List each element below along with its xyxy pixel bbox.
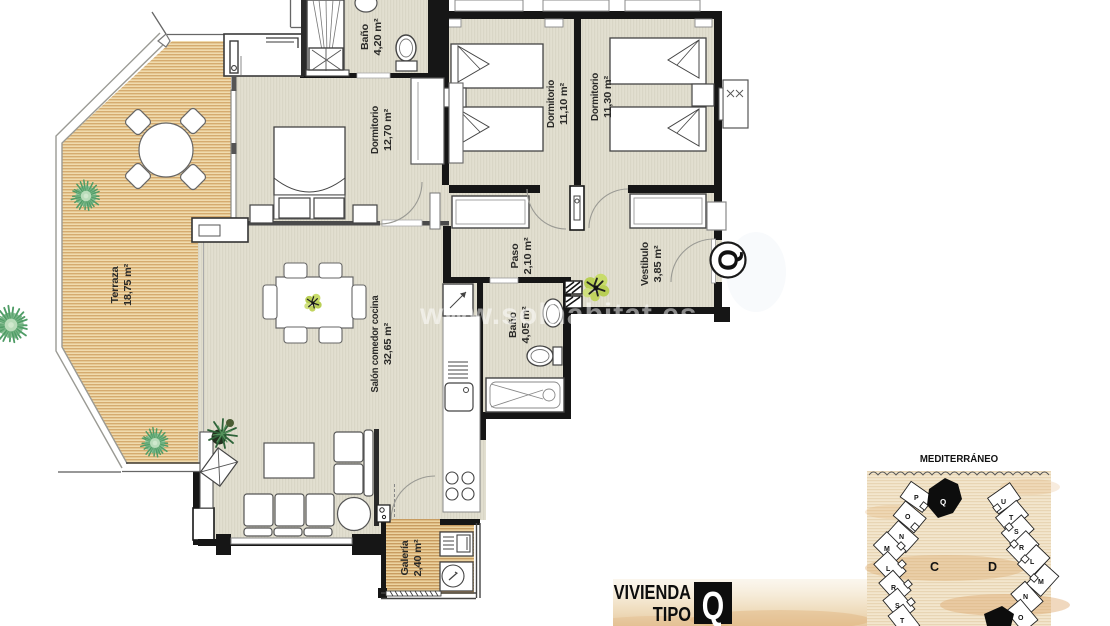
- svg-text:TIPO: TIPO: [653, 602, 691, 625]
- svg-text:N: N: [899, 534, 904, 541]
- svg-text:D: D: [988, 560, 997, 574]
- svg-text:Dormitorio12,70 m²: Dormitorio12,70 m²: [369, 106, 394, 154]
- svg-text:Q: Q: [940, 498, 946, 507]
- svg-text:Dormitorio11,30 m²: Dormitorio11,30 m²: [589, 73, 614, 121]
- svg-text:S: S: [1014, 529, 1019, 536]
- svg-text:R: R: [891, 585, 896, 592]
- svg-text:O: O: [1018, 615, 1024, 622]
- svg-text:C: C: [930, 560, 939, 574]
- svg-text:N: N: [1023, 594, 1028, 601]
- svg-text:U: U: [1001, 499, 1006, 506]
- svg-text:Galería2,40 m²: Galería2,40 m²: [399, 539, 424, 577]
- svg-text:VIVIENDA: VIVIENDA: [614, 580, 691, 603]
- svg-text:MEDITERRÁNEO: MEDITERRÁNEO: [920, 452, 998, 466]
- svg-text:Terraza18,75 m²: Terraza18,75 m²: [109, 263, 134, 306]
- svg-text:L: L: [1030, 559, 1035, 566]
- svg-text:Q: Q: [713, 249, 744, 271]
- svg-text:Vestibulo3,85 m²: Vestibulo3,85 m²: [639, 242, 664, 286]
- svg-text:L: L: [886, 566, 891, 573]
- svg-text:R: R: [1019, 545, 1024, 552]
- svg-text:M: M: [1038, 579, 1044, 586]
- svg-text:Dormitorio11,10 m²: Dormitorio11,10 m²: [545, 80, 570, 128]
- svg-text:www.solhabitat.es: www.solhabitat.es: [419, 298, 698, 331]
- svg-text:P: P: [914, 495, 919, 502]
- svg-text:T: T: [1009, 515, 1014, 522]
- svg-text:T: T: [900, 618, 905, 625]
- svg-text:M: M: [884, 546, 890, 553]
- svg-text:O: O: [905, 514, 911, 521]
- svg-text:Q: Q: [702, 583, 724, 626]
- svg-text:S: S: [895, 603, 900, 610]
